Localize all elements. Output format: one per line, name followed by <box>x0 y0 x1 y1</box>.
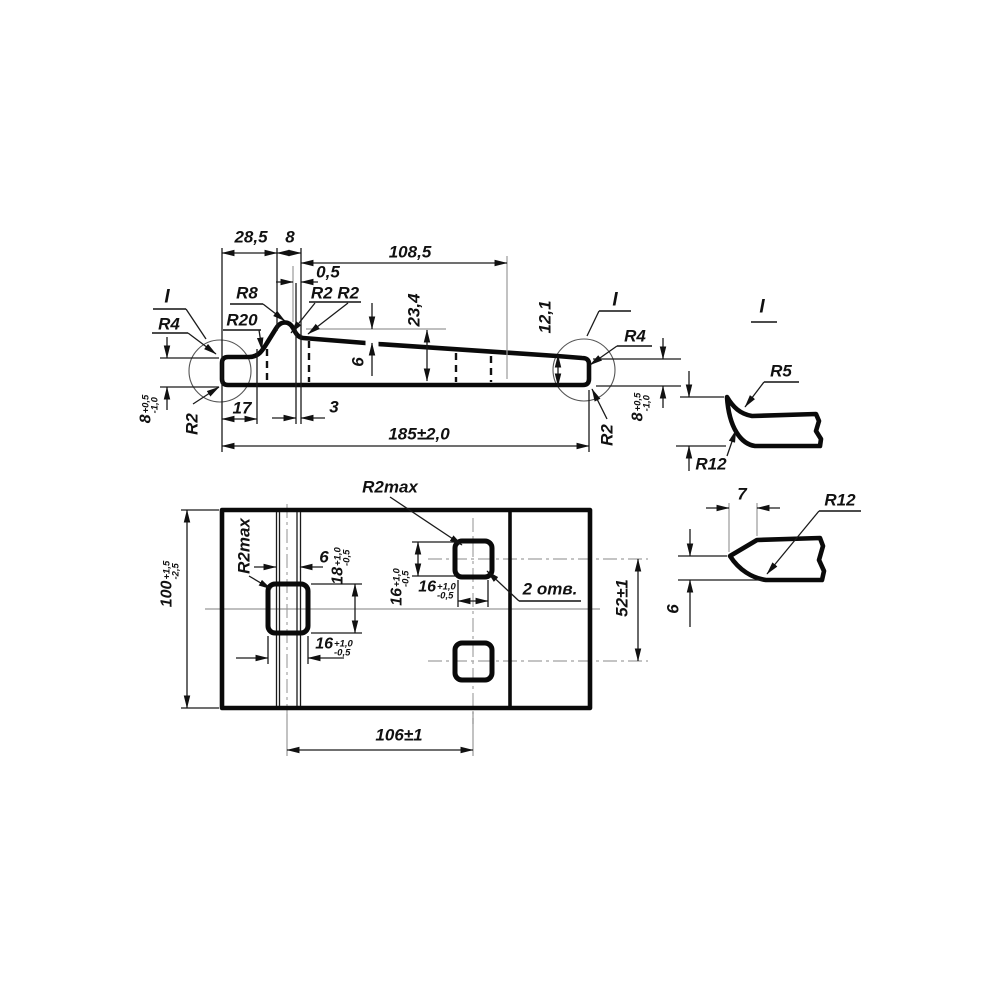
radius-r12-detail: R12 <box>695 456 726 473</box>
note-r2max-top: R2max <box>362 479 418 496</box>
tol-lower: -1,0 <box>643 393 652 412</box>
tol-value: 16 <box>418 579 436 596</box>
radius-r4-left: R4 <box>158 316 180 333</box>
tol-value: 18 <box>330 567 347 585</box>
dim-3: 3 <box>329 399 338 416</box>
dim-6-tip: 6 <box>665 604 682 613</box>
side-view <box>152 248 681 452</box>
radius-r20: R20 <box>226 312 257 329</box>
tol-value: 16 <box>315 636 333 653</box>
detail-ref-right: I <box>612 291 617 310</box>
dim-106: 106±1 <box>375 727 422 744</box>
tol-lower: -0,5 <box>334 649 353 658</box>
note-r2max-left: R2max <box>236 518 253 574</box>
tip-section-view <box>678 503 861 627</box>
dim-185: 185±2,0 <box>388 426 449 443</box>
tol-lower: -2,5 <box>172 561 181 580</box>
detail-circle-right <box>553 339 615 401</box>
tol-lower: -0,5 <box>402 568 411 587</box>
note-holes-count: 2 отв. <box>523 581 578 598</box>
radius-r2-left: R2 <box>184 413 201 435</box>
dim-8: 8 <box>285 229 294 246</box>
detail-outline <box>727 397 821 446</box>
dim-16-top-right: 16+1,0-0,5 <box>418 580 456 601</box>
detail-view-I <box>676 322 821 471</box>
tol-value: 8 <box>138 414 155 423</box>
dim-thickness-left: 8+0,5-1,0 <box>139 395 160 424</box>
detail-ref-left: I <box>164 288 169 307</box>
dim-12-1: 12,1 <box>537 300 554 333</box>
dim-16-vertical: 16+1,0-0,5 <box>390 568 411 606</box>
drawing-sheet: 28,5 8 108,5 0,5 R8 R20 R2 R2 23,4 6 12,… <box>0 0 1000 1000</box>
tol-lower: -0,5 <box>437 592 456 601</box>
dim-23-4: 23,4 <box>406 293 423 326</box>
detail-title: I <box>759 298 764 317</box>
dim-52: 52±1 <box>614 579 631 617</box>
dim-108-5: 108,5 <box>389 244 432 261</box>
radius-r8: R8 <box>236 285 258 302</box>
radius-r2r2: R2 R2 <box>311 285 359 302</box>
tol-lower: -1,0 <box>151 395 160 414</box>
dim-16-middle: 16+1,0-0,5 <box>315 637 353 658</box>
tol-value: 8 <box>630 412 647 421</box>
dim-28-5: 28,5 <box>234 229 267 246</box>
dim-6-side: 6 <box>350 357 367 366</box>
tol-lower: -0,5 <box>343 547 352 566</box>
radius-r5-detail: R5 <box>770 363 792 380</box>
dim-thickness-right: 8+0,5-1,0 <box>631 393 652 422</box>
side-view-outline <box>222 323 589 386</box>
dim-6-plan: 6 <box>319 549 328 566</box>
radius-r4-right: R4 <box>624 328 646 345</box>
dim-17: 17 <box>233 400 252 417</box>
tip-outline <box>730 538 824 580</box>
dim-100-tol: 100+1,5-2,5 <box>160 561 181 607</box>
radius-r2-right: R2 <box>599 424 616 446</box>
dim-0-5: 0,5 <box>316 264 340 281</box>
tol-value: 100 <box>159 581 176 608</box>
dim-7-tip: 7 <box>737 486 746 503</box>
dim-18-tol: 18+1,0-0,5 <box>331 547 352 585</box>
radius-r12-tip: R12 <box>824 492 855 509</box>
tol-value: 16 <box>389 588 406 606</box>
